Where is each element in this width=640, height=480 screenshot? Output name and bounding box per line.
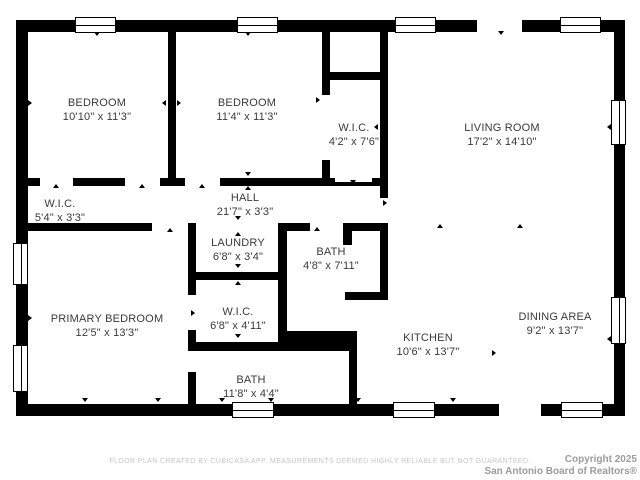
- room-label-laundry: LAUNDRY6'8" x 3'4": [211, 236, 265, 264]
- room-dimensions: 11'8" x 4'4": [223, 387, 279, 401]
- dimension-tick: [155, 398, 161, 402]
- wall-segment: [220, 178, 322, 186]
- wall-segment: [343, 231, 352, 245]
- room-dimensions: 4'8" x 7'11": [303, 259, 359, 273]
- door-opening: [499, 404, 541, 416]
- room-name: LAUNDRY: [211, 236, 265, 250]
- room-label-wic-top: W.I.C.4'2" x 7'6": [329, 121, 379, 149]
- room-label-bedroom-2: BEDROOM11'4" x 11'3": [216, 96, 277, 124]
- room-dimensions: 6'8" x 3'4": [211, 250, 265, 264]
- dimension-tick: [167, 228, 173, 232]
- copyright-line2: San Antonio Board of Realtors®: [484, 466, 637, 478]
- window-mullion: [561, 25, 600, 26]
- wall-segment: [196, 272, 285, 280]
- room-dimensions: 17'2" x 14'10": [464, 135, 540, 149]
- room-name: W.I.C.: [329, 121, 379, 135]
- wall-segment: [27, 178, 40, 186]
- dimension-tick: [199, 184, 205, 188]
- room-name: BATH: [223, 373, 279, 387]
- wall-segment: [188, 372, 196, 404]
- wall-segment: [380, 186, 388, 198]
- window-glyph: [561, 402, 603, 418]
- room-label-wic-primary: W.I.C.6'8" x 4'11": [210, 305, 266, 333]
- window-mullion: [21, 244, 22, 284]
- dimension-tick: [383, 200, 387, 206]
- room-dimensions: 6'8" x 4'11": [210, 319, 266, 333]
- dimension-tick: [350, 180, 356, 184]
- wall-segment: [188, 330, 196, 342]
- copyright-line1: Copyright 2025: [484, 454, 637, 466]
- wall-segment: [278, 223, 310, 231]
- room-dimensions: 12'5" x 13'3": [51, 326, 164, 340]
- room-label-bath-primary: BATH11'8" x 4'4": [223, 373, 279, 401]
- room-label-bath-hall: BATH4'8" x 7'11": [303, 245, 359, 273]
- wall-segment: [278, 223, 287, 342]
- wall-segment: [330, 72, 380, 80]
- dimension-tick: [492, 350, 496, 356]
- room-dimensions: 9'2" x 13'7": [518, 324, 591, 338]
- dimension-tick: [316, 97, 320, 103]
- room-label-hall: HALL21'7" x 3'3": [217, 191, 274, 219]
- dimension-tick: [607, 124, 611, 130]
- room-label-primary-bedroom: PRIMARY BEDROOM12'5" x 13'3": [51, 312, 164, 340]
- window-mullion: [76, 25, 115, 26]
- window-mullion: [233, 410, 273, 411]
- dimension-tick: [177, 100, 181, 106]
- wall-segment: [280, 331, 357, 342]
- wall-segment: [168, 32, 176, 178]
- window-glyph: [611, 297, 626, 344]
- window-glyph: [393, 402, 435, 418]
- room-name: PRIMARY BEDROOM: [51, 312, 164, 326]
- window-glyph: [13, 345, 28, 392]
- dimension-tick: [314, 227, 320, 231]
- wall-segment: [73, 178, 125, 186]
- dimension-tick: [498, 31, 504, 35]
- room-dimensions: 10'10" x 11'3": [63, 110, 131, 124]
- wall-segment: [614, 20, 625, 416]
- room-name: W.I.C.: [35, 197, 85, 211]
- room-name: DINING AREA: [518, 310, 591, 324]
- room-dimensions: 10'6" x 13'7": [397, 345, 460, 359]
- floor-plan-page: BEDROOM10'10" x 11'3"BEDROOM11'4" x 11'3…: [0, 0, 640, 480]
- dimension-tick: [607, 336, 611, 342]
- window-mullion: [396, 25, 435, 26]
- room-dimensions: 11'4" x 11'3": [216, 110, 277, 124]
- floor-plan-canvas: BEDROOM10'10" x 11'3"BEDROOM11'4" x 11'3…: [0, 0, 640, 480]
- dimension-tick: [94, 32, 100, 36]
- dimension-tick: [437, 224, 443, 228]
- room-name: BATH: [303, 245, 359, 259]
- room-label-wic-left: W.I.C.5'4" x 3'3": [35, 197, 85, 225]
- room-name: HALL: [217, 191, 274, 205]
- dimension-tick: [82, 398, 88, 402]
- dimension-tick: [517, 224, 523, 228]
- room-dimensions: 5'4" x 3'3": [35, 211, 85, 225]
- wall-segment: [322, 160, 330, 178]
- wall-segment: [349, 351, 357, 404]
- dimension-tick: [139, 184, 145, 188]
- room-dimensions: 21'7" x 3'3": [217, 205, 274, 219]
- wall-segment: [188, 342, 357, 351]
- room-name: W.I.C.: [210, 305, 266, 319]
- room-label-living-room: LIVING ROOM17'2" x 14'10": [464, 121, 540, 149]
- wall-segment: [160, 178, 185, 186]
- room-name: KITCHEN: [397, 331, 460, 345]
- dimension-tick: [450, 398, 456, 402]
- dimension-tick: [53, 184, 59, 188]
- dimension-tick: [235, 264, 241, 268]
- dimension-tick: [162, 100, 166, 106]
- dimension-tick: [191, 310, 195, 316]
- window-mullion: [619, 298, 620, 343]
- dimension-tick: [355, 398, 361, 402]
- window-glyph: [395, 17, 436, 33]
- dimension-tick: [245, 32, 251, 36]
- window-glyph: [237, 17, 278, 33]
- wall-segment: [322, 32, 330, 95]
- room-label-kitchen: KITCHEN10'6" x 13'7": [397, 331, 460, 359]
- dimension-tick: [245, 186, 251, 190]
- window-mullion: [238, 25, 277, 26]
- dimension-tick: [28, 315, 32, 321]
- window-glyph: [560, 17, 601, 33]
- window-mullion: [562, 410, 602, 411]
- window-glyph: [75, 17, 116, 33]
- room-name: BEDROOM: [216, 96, 277, 110]
- room-name: BEDROOM: [63, 96, 131, 110]
- room-label-bedroom-1: BEDROOM10'10" x 11'3": [63, 96, 131, 124]
- window-glyph: [13, 243, 28, 285]
- dimension-tick: [235, 281, 241, 285]
- window-glyph: [232, 402, 274, 418]
- window-mullion: [394, 410, 434, 411]
- dimension-tick: [245, 172, 251, 176]
- window-glyph: [611, 100, 626, 145]
- window-mullion: [21, 346, 22, 391]
- dimension-tick: [235, 334, 241, 338]
- wall-segment: [380, 223, 388, 300]
- room-label-dining-area: DINING AREA9'2" x 13'7": [518, 310, 591, 338]
- wall-segment: [380, 32, 388, 178]
- wall-segment: [188, 223, 196, 295]
- window-mullion: [619, 101, 620, 144]
- room-name: LIVING ROOM: [464, 121, 540, 135]
- room-dimensions: 4'2" x 7'6": [329, 135, 379, 149]
- copyright-notice: Copyright 2025 San Antonio Board of Real…: [484, 454, 637, 478]
- dimension-tick: [28, 100, 32, 106]
